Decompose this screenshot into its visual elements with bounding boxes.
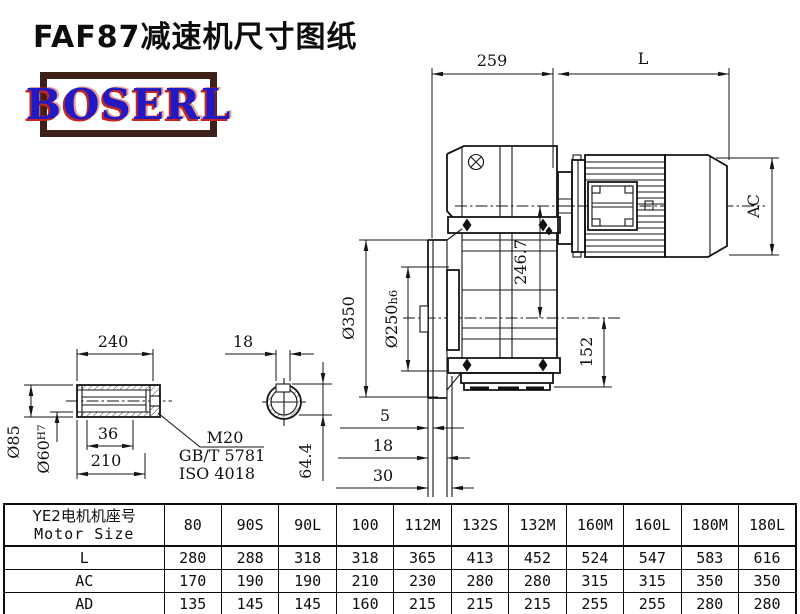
header-label-cn: YE2电机机座号 xyxy=(5,507,164,526)
note-thread: M20 xyxy=(207,428,244,447)
table-cell: 315 xyxy=(624,570,681,593)
dim-axis-distance: 246.7 xyxy=(511,239,530,285)
column-header: 90S xyxy=(221,504,278,546)
dim-flange-step-1: 5 xyxy=(380,406,390,425)
dim-motor-diameter: AC xyxy=(744,194,763,219)
table-cell: 255 xyxy=(566,593,623,614)
table-cell: 215 xyxy=(509,593,566,614)
table-cell: 315 xyxy=(566,570,623,593)
header-label-en: Motor Size xyxy=(5,525,164,543)
table-row-AC: AC 170 190 190 210 230 280 280 315 315 3… xyxy=(4,570,796,593)
table-cell: 318 xyxy=(279,546,336,570)
bolt-hole-icon xyxy=(469,155,484,170)
column-header: 80 xyxy=(164,504,221,546)
column-header: 90L xyxy=(279,504,336,546)
motor-outline xyxy=(546,155,728,257)
keyway-notch xyxy=(276,384,290,392)
main-view: 259 L AC Ø350 Ø250h6 246.7 xyxy=(336,49,779,497)
table-cell: 145 xyxy=(279,593,336,614)
dim-motor-length: L xyxy=(638,49,649,68)
gearbox-outline xyxy=(447,146,560,390)
column-header: 100 xyxy=(336,504,393,546)
table-cell: 583 xyxy=(681,546,738,570)
dim-keyway-depth: 64.4 xyxy=(296,443,315,479)
table-cell: 280 xyxy=(739,593,796,614)
motor-size-table: YE2电机机座号 Motor Size 80 90S 90L 100 112M … xyxy=(3,503,797,614)
dim-flange-step-2: 18 xyxy=(373,436,393,455)
table-header-row: YE2电机机座号 Motor Size 80 90S 90L 100 112M … xyxy=(4,504,796,546)
dimension-drawing: 259 L AC Ø350 Ø250h6 246.7 xyxy=(0,0,800,500)
table-cell: 135 xyxy=(164,593,221,614)
table-cell: 524 xyxy=(566,546,623,570)
dim-spigot-diameter: Ø250h6 xyxy=(382,290,401,348)
table-cell: 452 xyxy=(509,546,566,570)
column-header: 132S xyxy=(451,504,508,546)
table-cell: 413 xyxy=(451,546,508,570)
table-cell: 280 xyxy=(451,570,508,593)
table-cell: 280 xyxy=(681,593,738,614)
table-cell: 280 xyxy=(509,570,566,593)
row-label: AC xyxy=(4,570,164,593)
table-cell: 190 xyxy=(221,570,278,593)
note-standard-iso: ISO 4018 xyxy=(179,464,255,483)
table-header-motor-size: YE2电机机座号 Motor Size xyxy=(4,504,164,546)
dim-overall-width: 259 xyxy=(477,51,508,70)
column-header: 160M xyxy=(566,504,623,546)
table-cell: 210 xyxy=(336,570,393,593)
hollow-shaft-view: 240 36 210 Ø85 Ø60H7 M20 GB/T 5781 ISO 4… xyxy=(4,332,265,483)
table-cell: 255 xyxy=(624,593,681,614)
motor-terminal-box xyxy=(588,182,637,230)
dim-shaft-length: 240 xyxy=(98,332,129,351)
motor-fan-cowl xyxy=(665,155,727,257)
dim-keyway-width: 18 xyxy=(233,332,253,351)
column-header: 180M xyxy=(681,504,738,546)
dim-shaft-step: 36 xyxy=(98,424,118,443)
table-cell: 280 xyxy=(164,546,221,570)
note-standard-gb: GB/T 5781 xyxy=(179,446,265,465)
table-cell: 318 xyxy=(336,546,393,570)
table-cell: 170 xyxy=(164,570,221,593)
column-header: 132M xyxy=(509,504,566,546)
table-cell: 350 xyxy=(739,570,796,593)
table-cell: 616 xyxy=(739,546,796,570)
column-header: 180L xyxy=(739,504,796,546)
table-cell: 230 xyxy=(394,570,451,593)
table-row-AD: AD 135 145 145 160 215 215 215 255 255 2… xyxy=(4,593,796,614)
table-cell: 547 xyxy=(624,546,681,570)
dim-hub-length: 210 xyxy=(91,451,122,470)
table-row-L: L 280 288 318 318 365 413 452 524 547 58… xyxy=(4,546,796,570)
dim-flange-diameter: Ø350 xyxy=(339,296,358,340)
table-cell: 215 xyxy=(451,593,508,614)
row-label: L xyxy=(4,546,164,570)
dim-bore-diameter: Ø60H7 xyxy=(34,424,53,473)
column-header: 160L xyxy=(624,504,681,546)
dim-foot-height: 152 xyxy=(577,337,596,368)
row-label: AD xyxy=(4,593,164,614)
table-cell: 190 xyxy=(279,570,336,593)
table-cell: 365 xyxy=(394,546,451,570)
table-cell: 215 xyxy=(394,593,451,614)
table-cell: 160 xyxy=(336,593,393,614)
table-cell: 350 xyxy=(681,570,738,593)
drawing-sheet: FAF87减速机尺寸图纸 BOSERL xyxy=(0,0,800,614)
dim-flange-step-3: 30 xyxy=(373,466,393,485)
dim-shaft-outer-diameter: Ø85 xyxy=(4,425,23,458)
column-header: 112M xyxy=(394,504,451,546)
table-cell: 145 xyxy=(221,593,278,614)
table-cell: 288 xyxy=(221,546,278,570)
